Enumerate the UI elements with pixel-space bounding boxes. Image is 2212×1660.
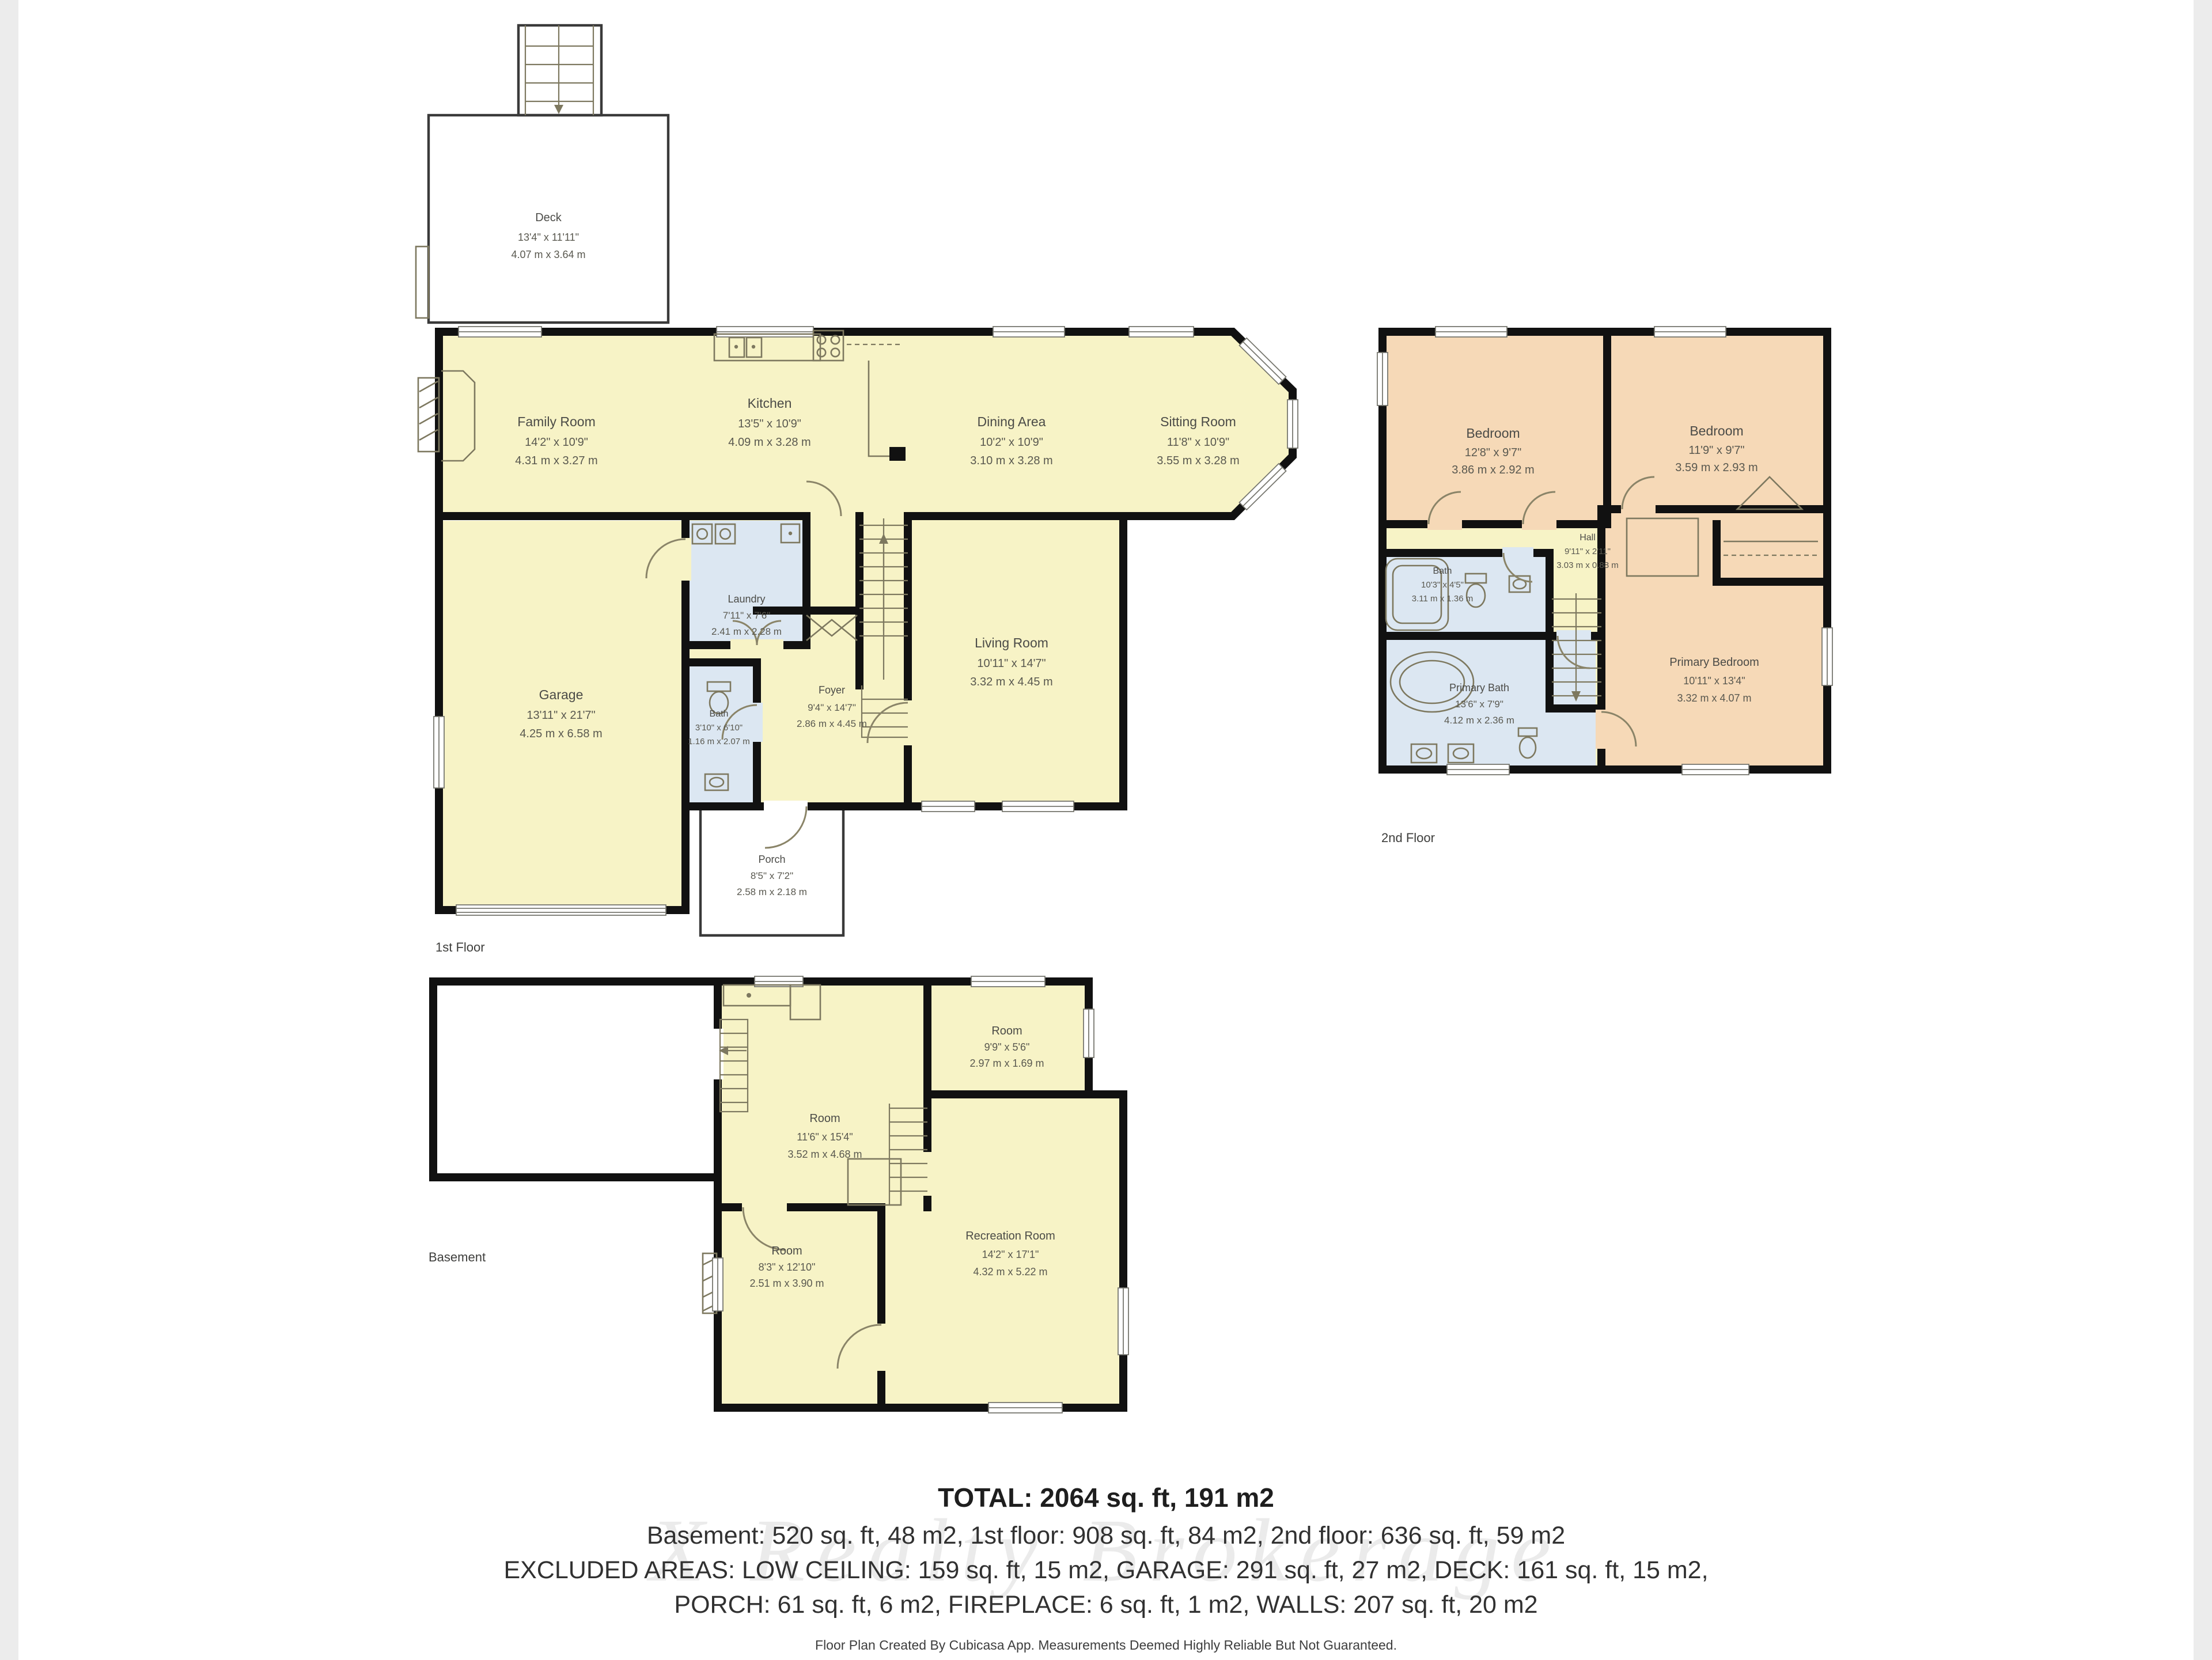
room-imperial-label: 3'10" x 6'10": [695, 723, 743, 733]
floor-plan-page: Deck 13'4" x 11'11" 4.07 m x 3.64 m Fami…: [0, 0, 2212, 1660]
deck: [416, 25, 668, 323]
summary-line1: Basement: 520 sq. ft, 48 m2, 1st floor: …: [647, 1522, 1565, 1549]
room-imperial-label: 8'5" x 7'2": [751, 870, 793, 881]
room-name-label: Bath: [710, 709, 729, 719]
room-name-label: Family Room: [517, 414, 595, 429]
room-name-label: Recreation Room: [965, 1230, 1055, 1242]
floor-label-first: 1st Floor: [435, 940, 485, 954]
room-name-label: Bedroom: [1466, 426, 1520, 441]
room-imperial-label: 11'6" x 15'4": [797, 1131, 853, 1143]
room-imperial-label: 12'8" x 9'7": [1465, 446, 1522, 459]
room-imperial-label: 7'11" x 7'6": [723, 610, 771, 621]
door-gap: [1522, 518, 1556, 530]
room-name-label: Living Room: [975, 635, 1048, 650]
garage-door: [456, 905, 666, 915]
room-imperial-label: 14'2" x 10'9": [525, 436, 588, 449]
door-arc: [765, 806, 806, 848]
room-metric-label: 3.86 m x 2.92 m: [1452, 464, 1534, 476]
room-imperial-label: 14'2" x 17'1": [982, 1249, 1039, 1260]
room-imperial-label: 13'4" x 11'11": [518, 232, 579, 243]
room-imperial-label: 11'8" x 10'9": [1167, 436, 1229, 449]
room-bedroom-right: [1607, 332, 1827, 509]
room-metric-label: 3.59 m x 2.93 m: [1675, 461, 1758, 474]
room-imperial-label: 8'3" x 12'10": [759, 1261, 816, 1273]
basement-rooms-fill: [718, 981, 1123, 1408]
room-metric-label: 1.16 m x 2.07 m: [688, 737, 750, 746]
room-metric-label: 3.10 m x 3.28 m: [970, 454, 1052, 467]
room-name-label: Foyer: [819, 684, 845, 696]
door-gap: [1427, 518, 1462, 530]
door-gap: [1621, 503, 1656, 515]
room-name-label: Hall: [1580, 533, 1596, 543]
room-name-label: Kitchen: [748, 396, 792, 411]
room-metric-label: 4.32 m x 5.22 m: [973, 1266, 1047, 1278]
door-gap: [1502, 547, 1533, 559]
room-name-label: Primary Bedroom: [1669, 656, 1759, 669]
floor-label-basement: Basement: [429, 1250, 486, 1264]
room-name-label: Room: [991, 1025, 1022, 1037]
room-name-label: Deck: [535, 211, 562, 224]
page-edge-left: [0, 0, 18, 1660]
summary-line3: PORCH: 61 sq. ft, 6 m2, FIREPLACE: 6 sq.…: [674, 1591, 1537, 1619]
door-gap: [876, 1324, 887, 1371]
window-well: [703, 1253, 723, 1313]
room-metric-label: 3.55 m x 3.28 m: [1157, 454, 1239, 467]
room-imperial-label: 9'11" x 2'11": [1565, 547, 1611, 556]
door-gap: [1596, 710, 1607, 749]
door-gap: [922, 1152, 933, 1196]
room-metric-label: 4.31 m x 3.27 m: [515, 454, 597, 467]
first-floor-plan: Deck 13'4" x 11'11" 4.07 m x 3.64 m Fami…: [416, 25, 1298, 954]
room-metric-label: 2.41 m x 2.28 m: [711, 626, 782, 637]
room-imperial-label: 11'9" x 9'7": [1688, 444, 1744, 457]
room-name-label: Sitting Room: [1160, 414, 1236, 429]
room-imperial-label: 9'4" x 14'7": [808, 702, 856, 713]
room-name-label: Dining Area: [978, 414, 1046, 429]
summary-footer: Floor Plan Created By Cubicasa App. Meas…: [815, 1638, 1397, 1653]
room-metric-label: 4.12 m x 2.36 m: [1444, 715, 1514, 726]
room-metric-label: 3.11 m x 1.36 m: [1412, 594, 1473, 604]
room-name-label: Laundry: [728, 593, 765, 605]
door-gap: [742, 1202, 787, 1213]
room-metric-label: 2.51 m x 3.90 m: [749, 1278, 824, 1289]
summary-line2: EXCLUDED AREAS: LOW CEILING: 159 sq. ft,…: [503, 1556, 1708, 1584]
door-gap: [764, 801, 808, 812]
room-imperial-label: 13'5" x 10'9": [738, 418, 801, 430]
room-name-label: Bedroom: [1690, 423, 1743, 438]
room-name-label: Porch: [758, 854, 785, 865]
room-metric-label: 4.25 m x 6.58 m: [520, 727, 602, 740]
floor-label-second: 2nd Floor: [1381, 831, 1435, 845]
room-metric-label: 2.97 m x 1.69 m: [969, 1058, 1044, 1069]
room-name-label: Room: [809, 1112, 840, 1125]
room-metric-label: 4.09 m x 3.28 m: [728, 436, 810, 449]
room-imperial-label: 10'11" x 14'7": [977, 657, 1046, 670]
floor-plan-image: Deck 13'4" x 11'11" 4.07 m x 3.64 m Fami…: [0, 0, 2212, 1660]
second-floor-plan: Bedroom 12'8" x 9'7" 3.86 m x 2.92 m Bed…: [1377, 327, 1832, 845]
page-edge-right: [2194, 0, 2212, 1660]
room-name-label: Bath: [1433, 566, 1452, 576]
room-name-label: Room: [771, 1245, 802, 1257]
room-metric-label: 3.32 m x 4.45 m: [970, 676, 1052, 688]
room-metric-label: 3.03 m x 0.88 m: [1556, 560, 1619, 570]
summary-total: TOTAL: 2064 sq. ft, 191 m2: [938, 1483, 1274, 1513]
basement-plan: Room 11'6" x 15'4" 3.52 m x 4.68 m Room …: [429, 976, 1128, 1413]
room-imperial-label: 13'6" x 7'9": [1455, 699, 1503, 710]
room-imperial-label: 13'11" x 21'7": [527, 709, 595, 722]
room-imperial-label: 10'11" x 13'4": [1683, 675, 1745, 687]
basement-unfinished-area: [437, 985, 714, 1174]
room-metric-label: 3.52 m x 4.68 m: [787, 1149, 862, 1160]
room-name-label: Primary Bath: [1449, 682, 1509, 693]
door-gap: [902, 700, 914, 745]
deck-stairs-icon: [518, 25, 601, 115]
room-imperial-label: 9'9" x 5'6": [984, 1041, 1030, 1053]
room-imperial-label: 10'3" x 4'5": [1421, 580, 1464, 590]
room-metric-label: 4.07 m x 3.64 m: [511, 249, 585, 260]
stair-opening: [712, 1029, 724, 1079]
room-imperial-label: 10'2" x 10'9": [980, 436, 1043, 449]
room-metric-label: 3.32 m x 4.07 m: [1677, 692, 1751, 704]
summary-text: X Realty Brokerage TOTAL: 2064 sq. ft, 1…: [503, 1483, 1708, 1653]
door-gap: [680, 538, 691, 581]
fireplace-icon: [889, 447, 906, 461]
room-metric-label: 2.58 m x 2.18 m: [737, 886, 807, 897]
room-name-label: Garage: [539, 687, 584, 702]
door-gap: [751, 703, 763, 742]
watermark: X Realty Brokerage: [646, 1500, 1562, 1600]
room-metric-label: 2.86 m x 4.45 m: [797, 718, 867, 729]
